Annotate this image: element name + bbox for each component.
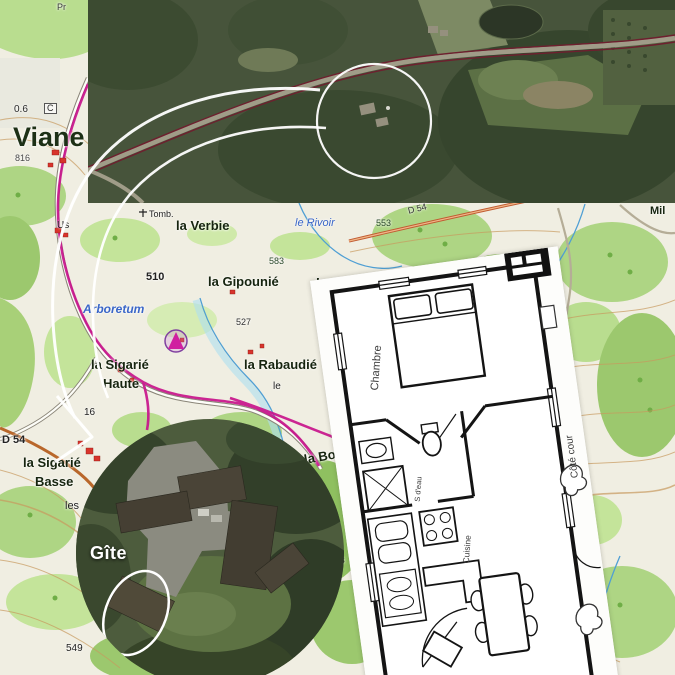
aerial-inset-circle: Gîte	[76, 419, 344, 675]
room-label-cuisine: Cuisine	[461, 535, 473, 564]
pillow	[393, 295, 431, 320]
pillow	[435, 289, 473, 314]
room-label-sdeau: S d'eau	[413, 476, 424, 502]
stove-icon	[419, 507, 457, 545]
camping-icon	[165, 330, 187, 352]
kitchen-sink-icon	[375, 520, 409, 542]
bed	[389, 284, 485, 387]
aerial-photo-strip	[88, 0, 675, 203]
kitchen-sink-icon	[378, 542, 412, 564]
composite-image: Pr0.6CViane816UsTomb.la Verbiele Rivoir5…	[0, 0, 675, 675]
gite-label: Gîte	[90, 543, 127, 564]
